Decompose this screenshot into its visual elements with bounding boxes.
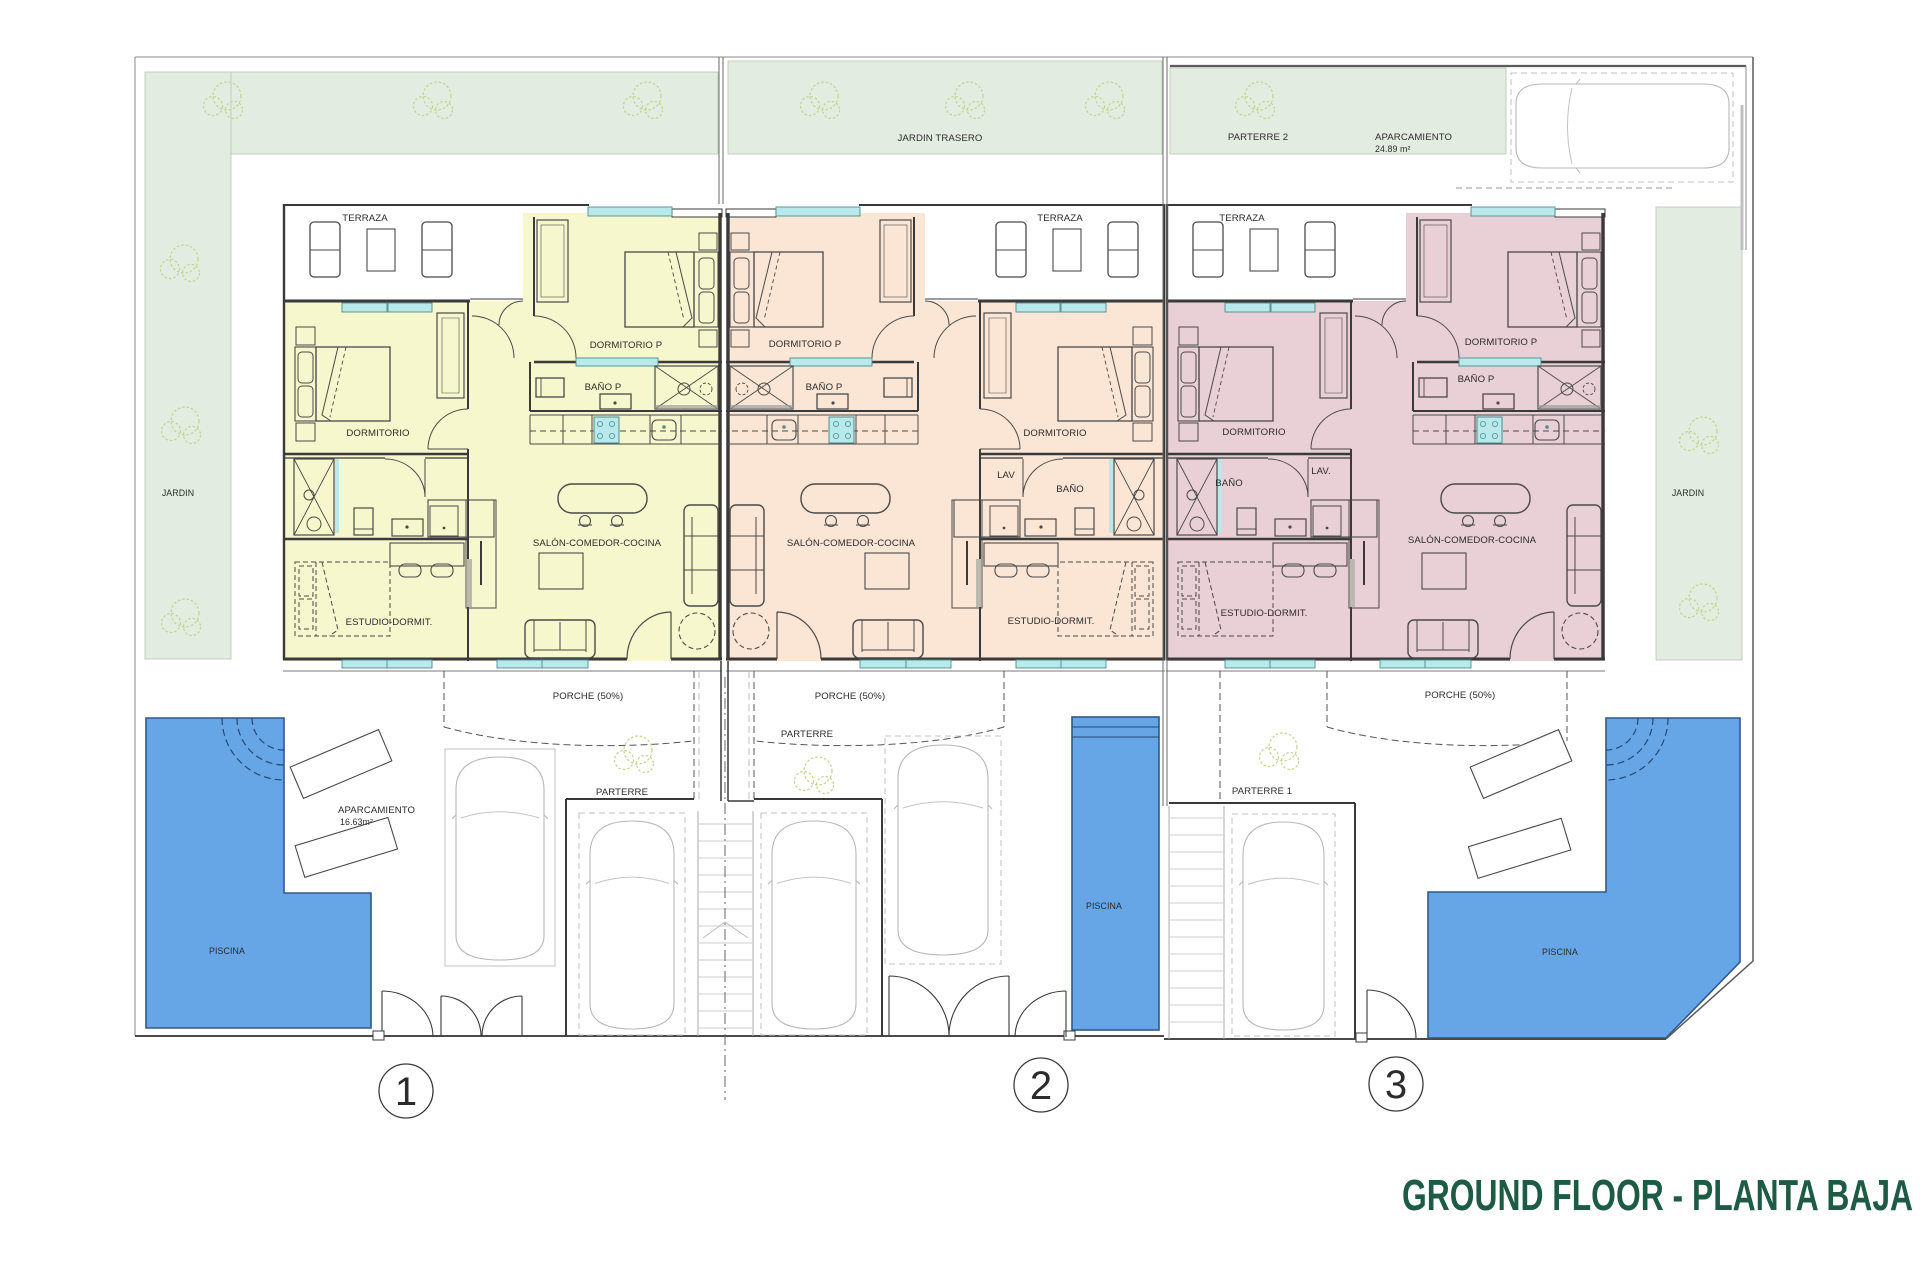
svg-text:BAÑO P: BAÑO P: [585, 382, 622, 393]
svg-text:PARTERRE: PARTERRE: [781, 729, 833, 740]
svg-text:2: 2: [1030, 1064, 1052, 1108]
svg-text:PORCHE (50%): PORCHE (50%): [553, 691, 624, 702]
svg-text:PARTERRE 1: PARTERRE 1: [1232, 786, 1292, 797]
svg-text:16.63m²: 16.63m²: [340, 817, 373, 827]
svg-text:JARDIN TRASERO: JARDIN TRASERO: [898, 133, 983, 144]
svg-text:PORCHE (50%): PORCHE (50%): [1425, 690, 1496, 701]
svg-text:PARTERRE 2: PARTERRE 2: [1228, 132, 1288, 143]
svg-text:DORMITORIO: DORMITORIO: [346, 428, 409, 439]
svg-text:LAV: LAV: [997, 470, 1015, 481]
svg-text:BAÑO: BAÑO: [1215, 478, 1243, 489]
svg-text:TERRAZA: TERRAZA: [342, 213, 388, 224]
svg-text:DORMITORIO P: DORMITORIO P: [590, 340, 662, 351]
svg-text:ESTUDIO-DORMIT.: ESTUDIO-DORMIT.: [1008, 616, 1095, 627]
svg-text:DORMITORIO: DORMITORIO: [1222, 427, 1285, 438]
svg-text:SALÓN-COMEDOR-COCINA: SALÓN-COMEDOR-COCINA: [533, 538, 662, 549]
svg-text:24.89 m²: 24.89 m²: [1375, 144, 1411, 154]
svg-text:APARCAMIENTO: APARCAMIENTO: [1375, 132, 1452, 143]
svg-text:LAV.: LAV.: [1311, 466, 1331, 477]
svg-text:JARDIN: JARDIN: [1672, 488, 1704, 498]
svg-text:BAÑO P: BAÑO P: [1458, 374, 1495, 385]
svg-text:SALÓN-COMEDOR-COCINA: SALÓN-COMEDOR-COCINA: [1408, 535, 1537, 546]
svg-text:ESTUDIO-DORMIT.: ESTUDIO-DORMIT.: [346, 617, 433, 628]
svg-text:SALÓN-COMEDOR-COCINA: SALÓN-COMEDOR-COCINA: [787, 538, 916, 549]
svg-text:TERRAZA: TERRAZA: [1037, 213, 1083, 224]
svg-text:PISCINA: PISCINA: [209, 946, 245, 956]
svg-text:APARCAMIENTO: APARCAMIENTO: [338, 805, 415, 816]
svg-text:BAÑO P: BAÑO P: [806, 382, 843, 393]
svg-text:PARTERRE: PARTERRE: [596, 787, 648, 798]
svg-text:DORMITORIO P: DORMITORIO P: [1465, 337, 1537, 348]
svg-text:DORMITORIO: DORMITORIO: [1023, 428, 1086, 439]
svg-text:3: 3: [1385, 1063, 1407, 1107]
svg-text:DORMITORIO P: DORMITORIO P: [769, 339, 841, 350]
svg-text:PISCINA: PISCINA: [1086, 901, 1122, 911]
svg-text:TERRAZA: TERRAZA: [1219, 213, 1265, 224]
svg-text:1: 1: [395, 1070, 417, 1114]
svg-text:PISCINA: PISCINA: [1542, 947, 1578, 957]
svg-text:JARDIN: JARDIN: [162, 488, 194, 498]
svg-text:BAÑO: BAÑO: [1056, 484, 1084, 495]
svg-text:ESTUDIO-DORMIT.: ESTUDIO-DORMIT.: [1221, 608, 1308, 619]
svg-text:GROUND FLOOR - PLANTA BAJA: GROUND FLOOR - PLANTA BAJA: [1402, 1171, 1913, 1220]
svg-text:PORCHE (50%): PORCHE (50%): [815, 691, 886, 702]
